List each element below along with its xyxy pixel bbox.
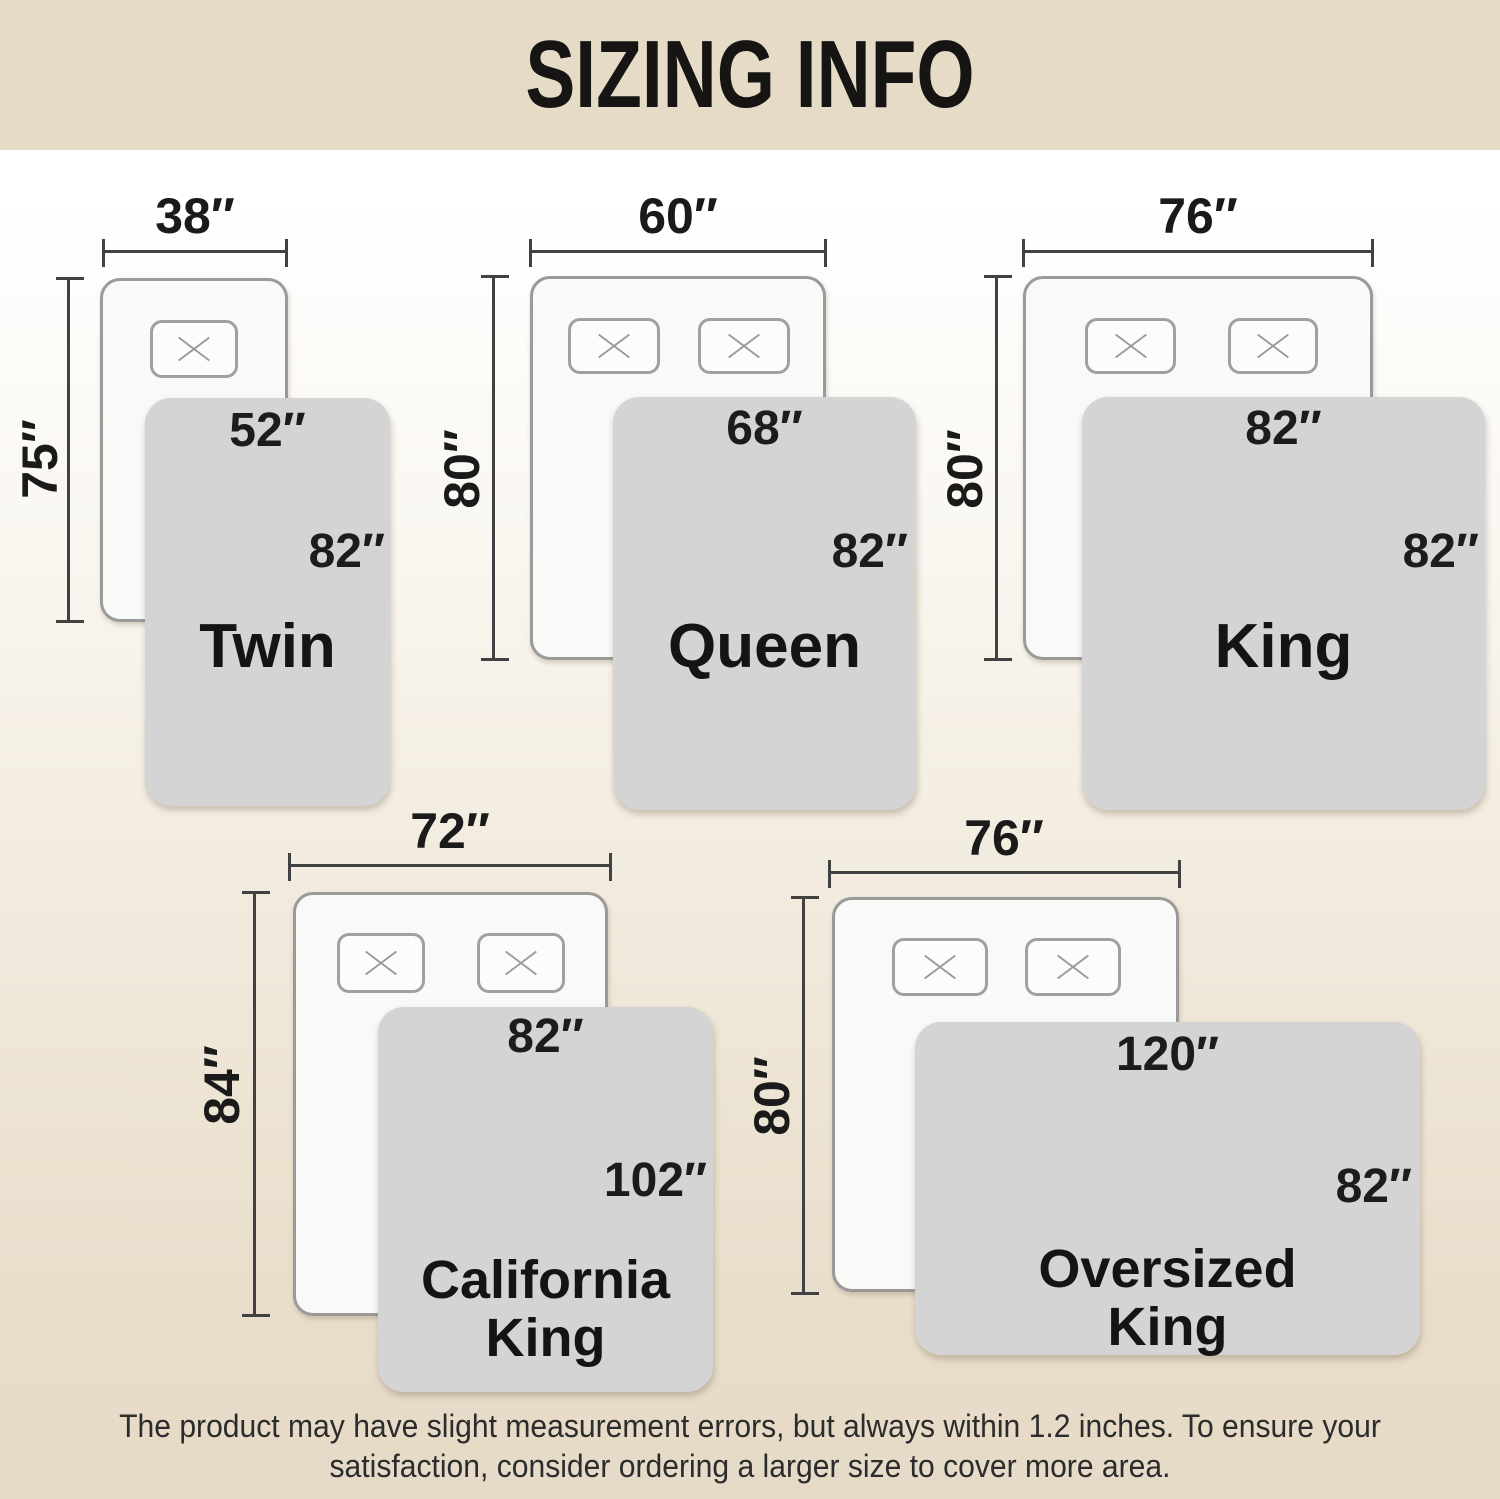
pillow-x-icon: [591, 327, 637, 365]
queen-width-dimension-line: [530, 250, 826, 253]
california-king-name-line1: California: [378, 1251, 713, 1309]
pillow-x-icon: [498, 944, 544, 982]
king-pillow-left: [1085, 318, 1176, 374]
california-king-bed-width-label: 72″: [350, 805, 550, 857]
oversized-king-name-label: OversizedKing: [915, 1240, 1420, 1356]
california-king-blanket-length-label: 102″: [378, 1156, 707, 1206]
twin-pillow: [150, 320, 238, 378]
king-bed-length-label: 80″: [939, 409, 991, 529]
queen-bed-length-label: 80″: [436, 409, 488, 529]
king-name-line1: King: [1082, 616, 1485, 678]
california-king-name-line2: King: [378, 1309, 713, 1367]
twin-blanket-width-label: 52″: [145, 406, 390, 456]
queen-name-label: Queen: [613, 616, 916, 678]
oversized-king-blanket-length-label: 82″: [915, 1162, 1412, 1212]
queen-blanket: [613, 397, 916, 810]
pillow-x-icon: [917, 948, 963, 986]
sizing-infographic: SIZING INFO 38″ 75″ 52″ 82″ Twin 60″ 80″…: [0, 0, 1500, 1499]
pillow-x-icon: [1108, 327, 1154, 365]
pillow-x-icon: [721, 327, 767, 365]
header-band: SIZING INFO: [0, 0, 1500, 150]
page-title: SIZING INFO: [525, 20, 974, 130]
oversized-king-bed-length-label: 80″: [746, 1036, 798, 1156]
twin-bed-length-label: 75″: [14, 399, 66, 519]
king-blanket-length-label: 82″: [1082, 527, 1479, 577]
king-width-dimension-line: [1023, 250, 1373, 253]
oversized-king-name-line1: Oversized: [915, 1240, 1420, 1298]
king-name-label: King: [1082, 616, 1485, 678]
california-king-name-label: CaliforniaKing: [378, 1251, 713, 1367]
twin-name-line1: Twin: [145, 616, 390, 678]
oversized-king-name-line2: King: [915, 1298, 1420, 1356]
queen-blanket-length-label: 82″: [613, 527, 908, 577]
oversized-king-pillow-right: [1025, 938, 1121, 996]
queen-name-line1: Queen: [613, 616, 916, 678]
california-king-bed-length-label: 84″: [196, 1025, 248, 1145]
pillow-x-icon: [171, 330, 217, 368]
king-blanket-width-label: 82″: [1082, 404, 1485, 454]
queen-bed-width-label: 60″: [578, 190, 778, 242]
king-length-dimension-line: [995, 276, 998, 660]
pillow-x-icon: [1050, 948, 1096, 986]
california-king-length-dimension-line: [253, 892, 256, 1316]
queen-blanket-width-label: 68″: [613, 404, 916, 454]
king-bed-width-label: 76″: [1098, 190, 1298, 242]
king-pillow-right: [1228, 318, 1318, 374]
pillow-x-icon: [358, 944, 404, 982]
california-king-blanket-width-label: 82″: [378, 1012, 713, 1062]
oversized-king-bed-width-label: 76″: [904, 812, 1104, 864]
california-king-pillow-right: [477, 933, 565, 993]
king-blanket: [1082, 397, 1485, 810]
queen-pillow-left: [568, 318, 660, 374]
california-king-pillow-left: [337, 933, 425, 993]
twin-width-dimension-line: [103, 250, 287, 253]
oversized-king-pillow-left: [892, 938, 988, 996]
queen-pillow-right: [698, 318, 790, 374]
oversized-king-length-dimension-line: [802, 897, 805, 1294]
disclaimer-text: The product may have slight measurement …: [45, 1406, 1455, 1486]
twin-blanket-length-label: 82″: [145, 527, 385, 577]
twin-name-label: Twin: [145, 616, 390, 678]
disclaimer-line1: The product may have slight measurement …: [45, 1406, 1455, 1446]
pillow-x-icon: [1250, 327, 1296, 365]
queen-length-dimension-line: [492, 276, 495, 660]
twin-bed-width-label: 38″: [95, 190, 295, 242]
twin-blanket: [145, 398, 390, 806]
california-king-width-dimension-line: [289, 864, 611, 867]
oversized-king-width-dimension-line: [829, 871, 1180, 874]
disclaimer-line2: satisfaction, consider ordering a larger…: [45, 1446, 1455, 1486]
oversized-king-blanket-width-label: 120″: [915, 1030, 1420, 1080]
